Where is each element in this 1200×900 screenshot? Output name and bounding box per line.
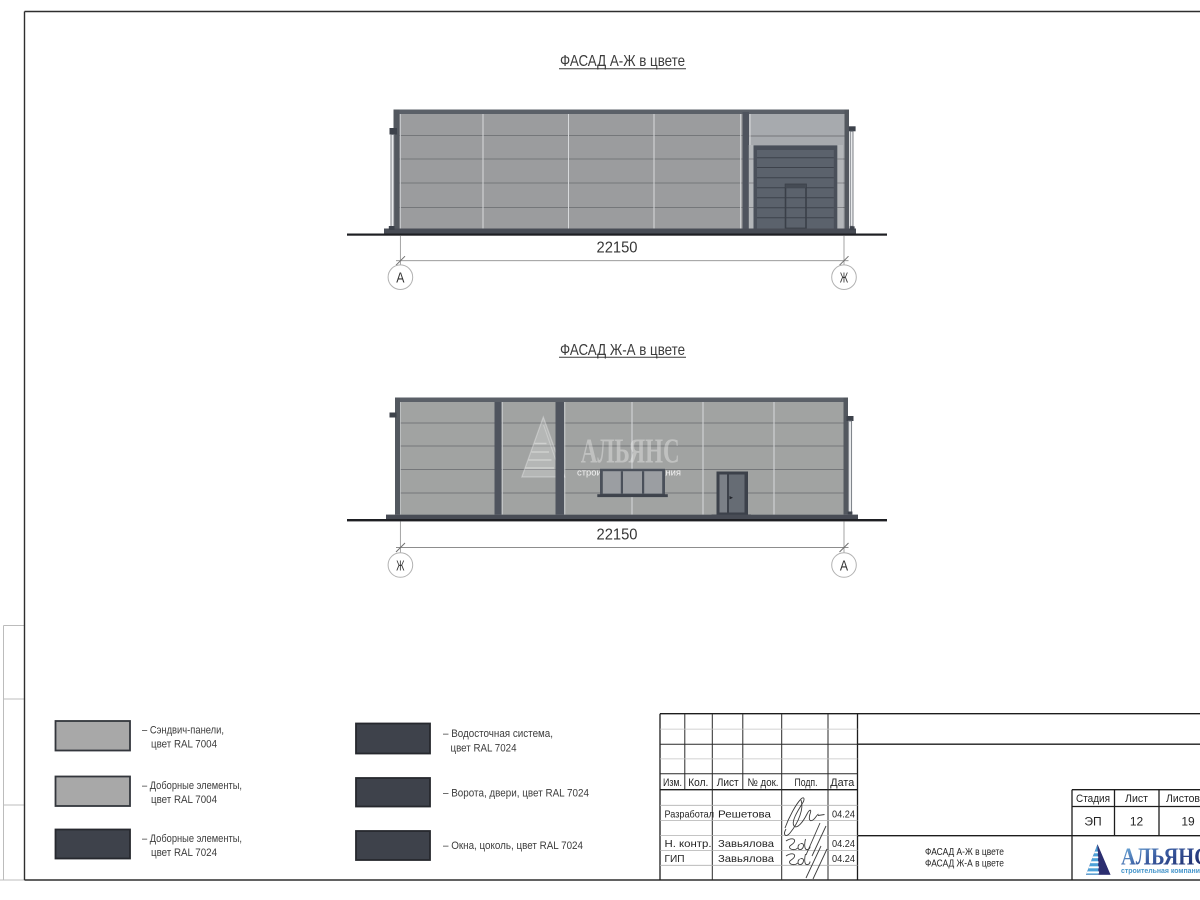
svg-text:цвет RAL 7004: цвет RAL 7004 bbox=[151, 738, 217, 750]
svg-text:ФАСАД А-Ж в цвете: ФАСАД А-Ж в цвете bbox=[560, 53, 685, 70]
svg-text:Лист: Лист bbox=[717, 777, 739, 789]
svg-text:04.24: 04.24 bbox=[832, 853, 855, 865]
svg-text:Листов: Листов bbox=[1166, 793, 1200, 805]
svg-text:ЭП: ЭП bbox=[1084, 815, 1101, 829]
svg-text:№ док.: № док. bbox=[748, 777, 779, 789]
svg-text:Лист: Лист bbox=[1125, 793, 1148, 805]
svg-text:Завьялова: Завьялова bbox=[718, 853, 774, 865]
svg-text:22150: 22150 bbox=[597, 527, 638, 544]
svg-text:– Доборные элементы,: – Доборные элементы, bbox=[142, 780, 242, 792]
svg-text:Дата: Дата bbox=[830, 777, 855, 789]
svg-text:ФАСАД Ж-А в цвете: ФАСАД Ж-А в цвете bbox=[925, 858, 1004, 869]
svg-text:19: 19 bbox=[1181, 815, 1195, 829]
svg-text:Ж: Ж bbox=[396, 558, 405, 574]
svg-text:Решетова: Решетова bbox=[718, 808, 771, 820]
svg-text:22150: 22150 bbox=[597, 240, 638, 257]
svg-text:строительная компания: строительная компания bbox=[1121, 866, 1200, 875]
svg-text:цвет RAL 7024: цвет RAL 7024 bbox=[451, 743, 517, 755]
svg-text:Кол.: Кол. bbox=[688, 777, 708, 789]
svg-text:цвет RAL 7024: цвет RAL 7024 bbox=[151, 847, 217, 859]
svg-text:Ж: Ж bbox=[840, 271, 849, 287]
svg-text:– Сэндвич-панели,: – Сэндвич-панели, bbox=[142, 725, 224, 737]
svg-text:А: А bbox=[396, 271, 404, 287]
svg-text:12: 12 bbox=[1130, 815, 1144, 829]
svg-text:Изм.: Изм. bbox=[663, 777, 682, 789]
svg-text:цвет RAL 7004: цвет RAL 7004 bbox=[151, 794, 217, 806]
svg-text:Разработал: Разработал bbox=[665, 808, 715, 820]
svg-text:Стадия: Стадия bbox=[1076, 793, 1110, 805]
svg-text:А: А bbox=[840, 558, 848, 574]
svg-text:– Ворота, двери, цвет RAL 7024: – Ворота, двери, цвет RAL 7024 bbox=[443, 787, 589, 799]
svg-text:04.24: 04.24 bbox=[832, 808, 855, 820]
svg-text:ФАСАД Ж-А в цвете: ФАСАД Ж-А в цвете bbox=[560, 342, 685, 359]
svg-text:ГИП: ГИП bbox=[665, 853, 685, 865]
svg-text:ФАСАД А-Ж в цвете: ФАСАД А-Ж в цвете bbox=[925, 847, 1004, 858]
svg-text:– Доборные элементы,: – Доборные элементы, bbox=[142, 833, 242, 845]
svg-text:Подп.: Подп. bbox=[795, 777, 818, 789]
svg-text:04.24: 04.24 bbox=[832, 838, 855, 850]
svg-text:Завьялова: Завьялова bbox=[718, 838, 774, 850]
svg-text:– Водосточная система,: – Водосточная система, bbox=[443, 728, 553, 740]
svg-text:– Окна, цоколь, цвет RAL 7024: – Окна, цоколь, цвет RAL 7024 bbox=[443, 840, 583, 852]
svg-text:Н. контр.: Н. контр. bbox=[665, 838, 712, 850]
svg-text:АЛЬЯНС: АЛЬЯНС bbox=[581, 432, 680, 471]
